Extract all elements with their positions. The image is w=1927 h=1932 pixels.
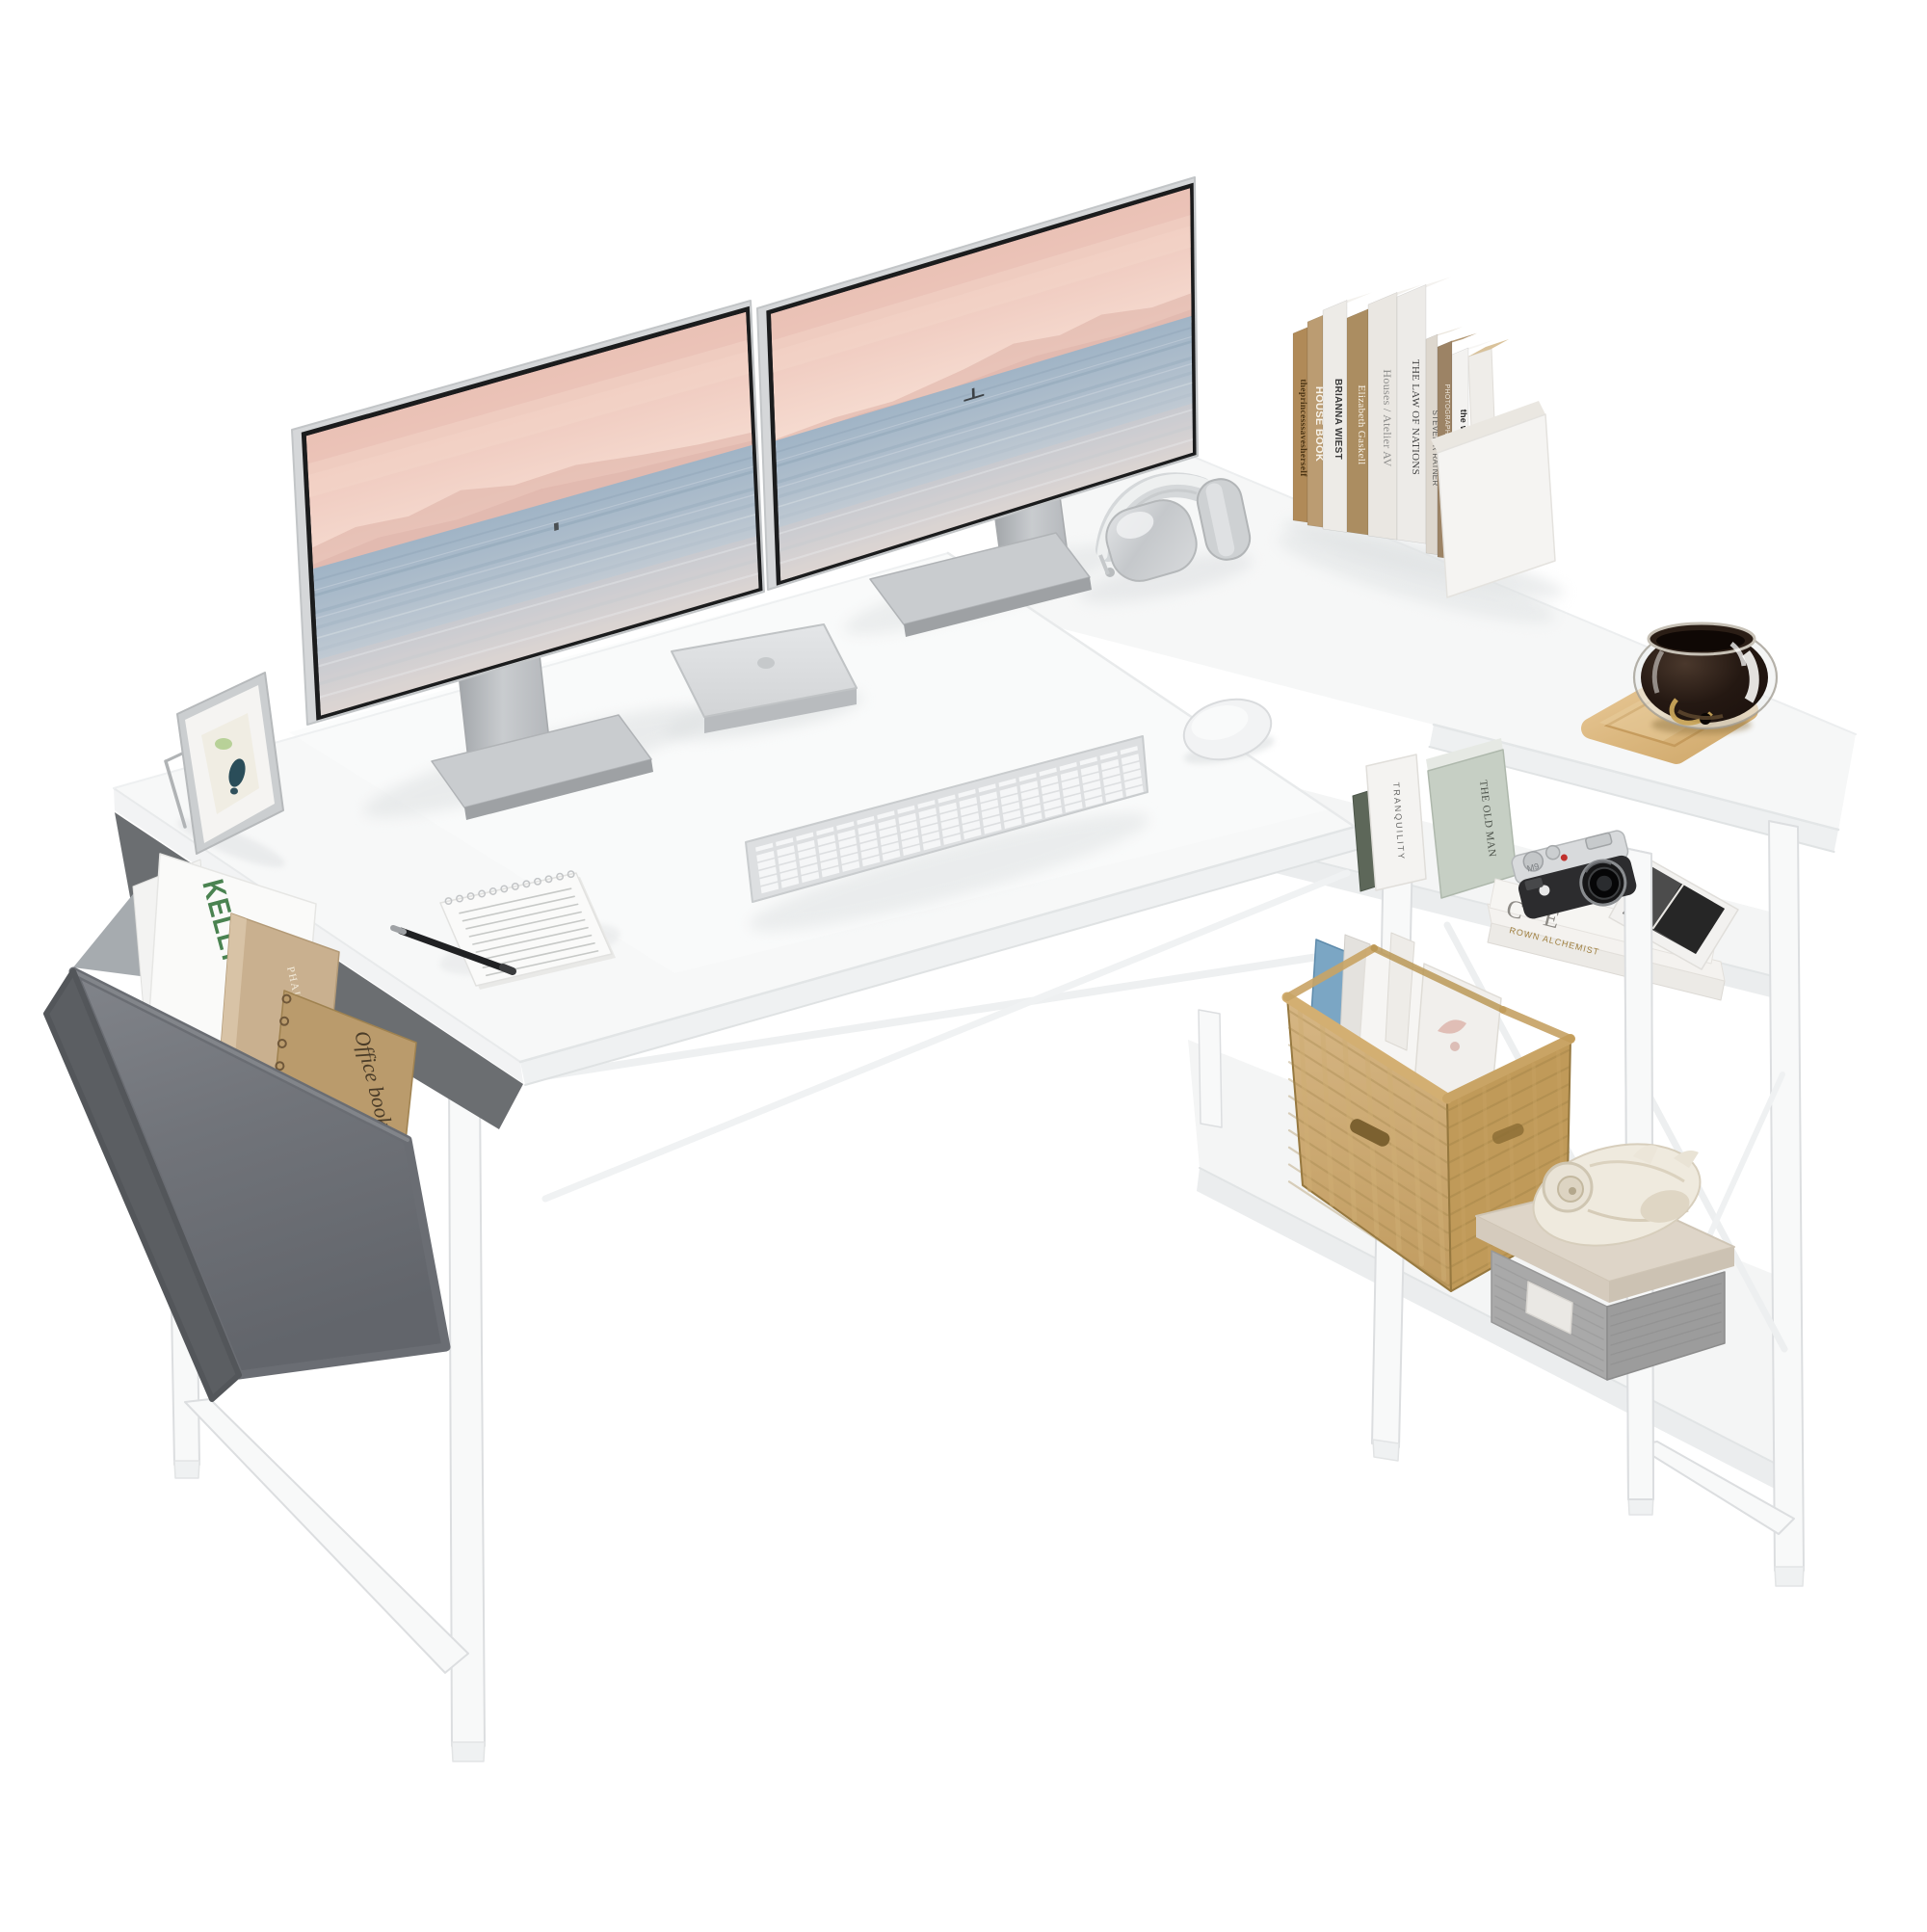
svg-text:BRIANNA WIEST: BRIANNA WIEST <box>1333 379 1343 460</box>
svg-text:Elizabeth Gaskell: Elizabeth Gaskell <box>1356 385 1367 465</box>
svg-text:Houses / Atelier AV: Houses / Atelier AV <box>1381 369 1394 466</box>
svg-text:THE LAW OF NATIONS: THE LAW OF NATIONS <box>1410 359 1421 475</box>
svg-text:theprincesssavesherself: theprincesssavesherself <box>1298 379 1307 477</box>
